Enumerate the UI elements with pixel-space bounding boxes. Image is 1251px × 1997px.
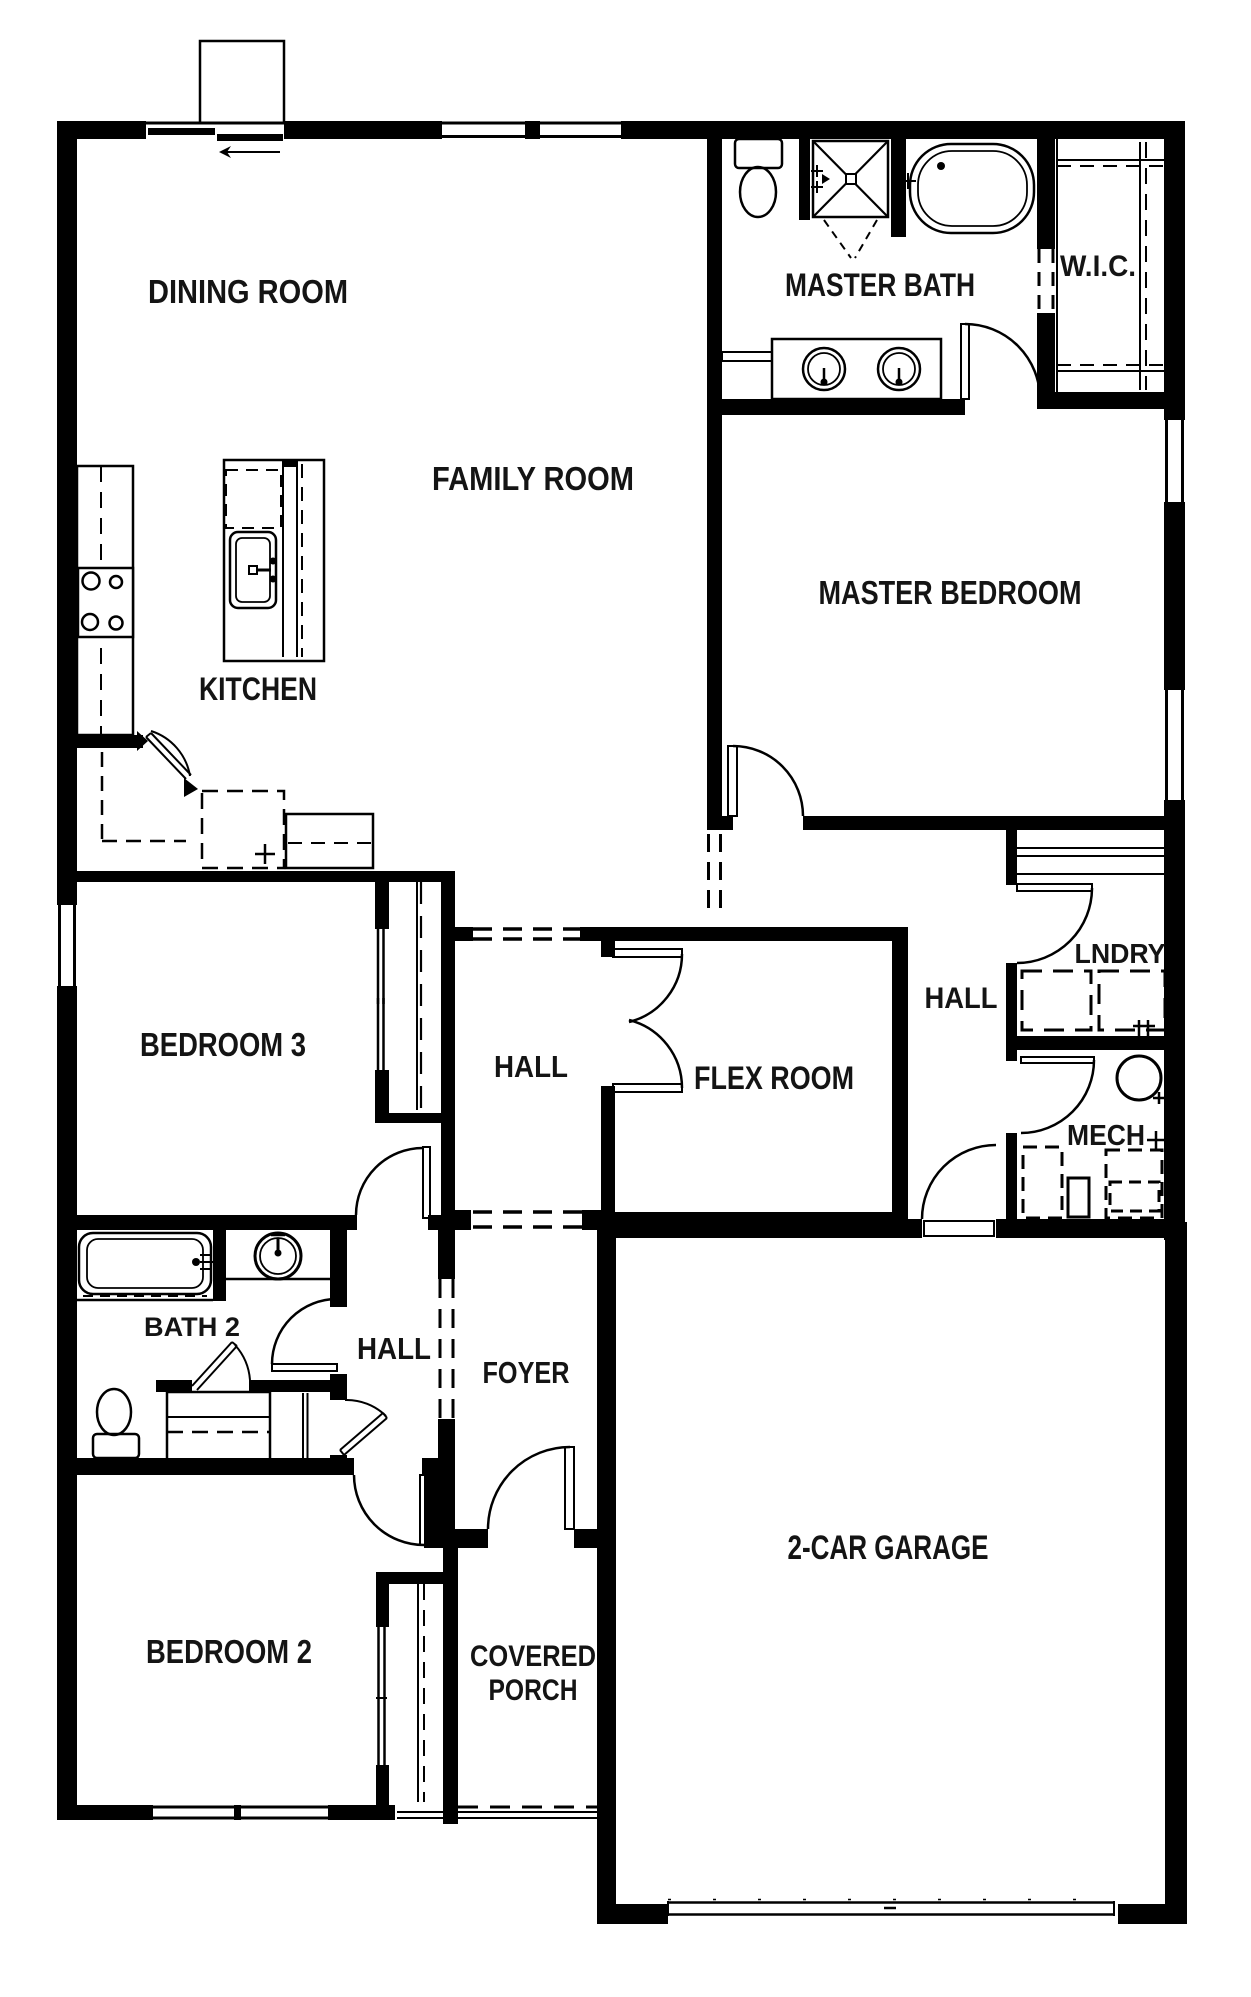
svg-text:KITCHEN: KITCHEN <box>199 671 317 707</box>
svg-text:MASTER BATH: MASTER BATH <box>785 267 975 303</box>
svg-text:BEDROOM 3: BEDROOM 3 <box>140 1026 306 1063</box>
svg-text:BATH 2: BATH 2 <box>144 1312 240 1342</box>
svg-text:DINING ROOM: DINING ROOM <box>148 273 348 310</box>
svg-text:FLEX ROOM: FLEX ROOM <box>694 1060 854 1096</box>
svg-text:COVERED: COVERED <box>470 1640 596 1673</box>
svg-text:HALL: HALL <box>925 982 998 1015</box>
svg-text:LNDRY: LNDRY <box>1075 938 1166 969</box>
svg-text:MECH: MECH <box>1067 1120 1145 1152</box>
svg-text:MASTER BEDROOM: MASTER BEDROOM <box>819 574 1082 611</box>
svg-text:HALL: HALL <box>357 1331 431 1366</box>
svg-text:2-CAR GARAGE: 2-CAR GARAGE <box>788 1529 989 1567</box>
svg-text:HALL: HALL <box>494 1049 568 1084</box>
svg-text:FOYER: FOYER <box>483 1355 570 1390</box>
svg-text:W.I.C.: W.I.C. <box>1060 250 1136 283</box>
svg-text:PORCH: PORCH <box>489 1674 578 1707</box>
svg-text:BEDROOM 2: BEDROOM 2 <box>146 1633 312 1670</box>
svg-text:FAMILY ROOM: FAMILY ROOM <box>432 460 634 497</box>
